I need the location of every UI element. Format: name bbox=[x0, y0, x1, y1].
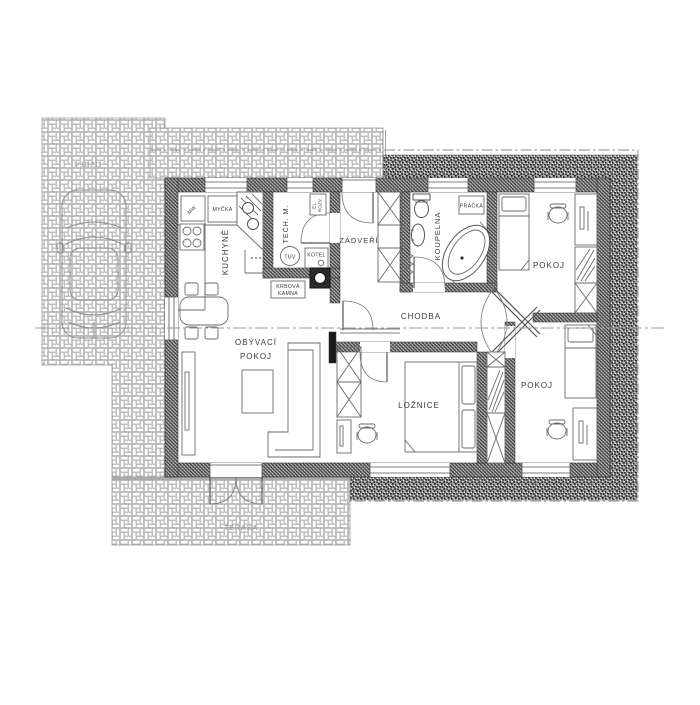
driveway-paving bbox=[42, 118, 165, 477]
equip-label-krbova-1: KRBOVÁ bbox=[276, 283, 300, 290]
window-bathroom bbox=[428, 178, 468, 192]
equip-label-tuv: TUV bbox=[284, 255, 296, 261]
sink-basin-2 bbox=[248, 219, 259, 230]
stove bbox=[180, 224, 204, 250]
room-label-obyvaci-2: POKOJ bbox=[240, 352, 272, 361]
site-label-terasa: TERASA bbox=[224, 525, 258, 532]
room-label-obyvaci-1: OBÝVACÍ bbox=[235, 338, 277, 347]
washbasin bbox=[411, 224, 425, 246]
terrace-edge bbox=[112, 477, 350, 481]
walkway-paving bbox=[150, 128, 383, 178]
room-label-loznice: LOŽNICE bbox=[398, 401, 440, 410]
terrace-paving bbox=[112, 477, 350, 545]
site-label-vjezd: VJEZD bbox=[74, 162, 101, 169]
window-tech bbox=[287, 178, 313, 192]
equip-label-kotel: KOTEL bbox=[307, 253, 326, 259]
room-label-chodba: CHODBA bbox=[401, 312, 441, 321]
door-terrace-opening bbox=[210, 463, 262, 477]
bath-door-gap bbox=[413, 283, 445, 292]
room-label-pokoj-top: POKOJ bbox=[533, 261, 565, 270]
room-label-tech: TECH. M. bbox=[283, 205, 290, 244]
room-label-zadveri: ZÁDVEŘÍ bbox=[339, 236, 379, 245]
bedroom-door-gap bbox=[360, 342, 390, 352]
window-kitchen bbox=[205, 178, 247, 192]
sink-basin-1 bbox=[243, 203, 254, 214]
equip-label-mycka: MYČKA bbox=[213, 206, 233, 213]
window-room-bottom bbox=[522, 463, 570, 477]
equip-label-pracka: PRAČKA bbox=[460, 203, 483, 210]
equip-label-krbova-2: KAMNA bbox=[278, 291, 298, 297]
window-bedroom bbox=[370, 463, 450, 477]
floor-plan-svg: KUCHYNĚ OBÝVACÍ POKOJ TECH. M. ZÁDVEŘÍ K… bbox=[0, 0, 700, 700]
pocket-wall bbox=[329, 332, 336, 363]
room-label-pokoj-bottom: POKOJ bbox=[521, 381, 553, 390]
toilet bbox=[413, 194, 430, 218]
room-label-koupelna: KOUPELNA bbox=[433, 212, 442, 261]
window-dining bbox=[165, 297, 178, 340]
entrance-opening bbox=[342, 178, 376, 192]
built-in-closet bbox=[487, 352, 505, 463]
window-room-top bbox=[534, 178, 576, 192]
room-label-kuchyne: KUCHYNĚ bbox=[221, 229, 230, 275]
equip-label-el-2: ROZV. bbox=[318, 198, 323, 213]
equip-label-el-1: EL. bbox=[312, 201, 317, 209]
